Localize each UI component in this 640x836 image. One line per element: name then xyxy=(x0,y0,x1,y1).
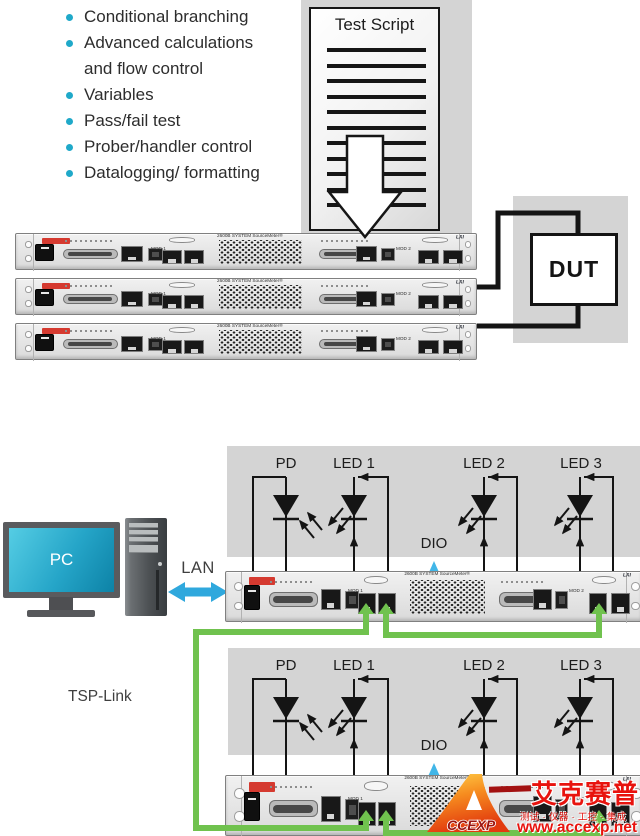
rack-hole xyxy=(631,602,640,611)
feature-list: Conditional branchingAdvanced calculatio… xyxy=(62,4,280,186)
tsp-link-label: TSP-Link xyxy=(68,688,132,706)
panel-marks xyxy=(321,285,370,287)
dut-label: DUT xyxy=(549,256,599,283)
diagram-canvas: Conditional branchingAdvanced calculatio… xyxy=(0,0,640,836)
mod1-label: MOD 1 xyxy=(348,589,356,606)
instrument: MOD 1MOD 22600B SYSTEM SourceMeter®LXI xyxy=(15,233,477,270)
drive-bay xyxy=(129,530,158,535)
rack-hole xyxy=(234,602,243,611)
monitor-stand-neck xyxy=(49,597,73,611)
tsp-link-port xyxy=(358,802,376,826)
power-switch xyxy=(244,792,261,821)
rack-hole xyxy=(25,331,31,337)
test-script-line xyxy=(327,203,426,207)
rack-seam xyxy=(33,324,34,361)
test-script-line xyxy=(327,79,426,83)
lxi-logo: LXI xyxy=(456,325,474,334)
usb-a-port xyxy=(592,576,616,584)
dio-label: DIO xyxy=(404,535,464,552)
power-mark xyxy=(41,292,49,294)
lxi-logo: LXI xyxy=(456,280,474,289)
tsp-link-port xyxy=(589,593,607,613)
rack-hole xyxy=(25,241,31,247)
rack-hole xyxy=(25,255,31,261)
power-switch xyxy=(244,585,261,610)
test-script-line xyxy=(327,64,426,68)
led1-label: LED 1 xyxy=(324,455,384,472)
watermark-brand-cn: 艾克赛普 xyxy=(531,774,639,811)
test-script-line xyxy=(327,157,426,161)
dsub-connector xyxy=(63,339,118,349)
usb-a-port xyxy=(422,282,449,288)
tsp-link-port xyxy=(418,340,438,355)
tsp-link-port xyxy=(443,340,463,355)
vent-grid xyxy=(219,330,302,354)
mod1-label: MOD 1 xyxy=(151,292,160,305)
power-switch xyxy=(35,244,54,262)
usb-a-port xyxy=(422,237,449,243)
vent-grid xyxy=(219,240,302,264)
instrument: MOD 1MOD 22600B SYSTEM SourceMeter®LXI xyxy=(15,323,477,360)
tsp-link-port xyxy=(184,295,204,310)
panel-marks xyxy=(65,285,114,287)
tsp-link-port xyxy=(162,295,182,310)
led3-label: LED 3 xyxy=(551,455,611,472)
tsp-link-port xyxy=(443,295,463,310)
tsp-link-port xyxy=(418,295,438,310)
mod1-label: MOD 1 xyxy=(151,337,160,350)
power-switch xyxy=(35,289,54,307)
rack-hole xyxy=(465,345,471,351)
lan-port xyxy=(356,246,378,262)
tsp-link-port xyxy=(162,250,182,265)
rack-hole xyxy=(234,582,243,591)
usb-a-port xyxy=(169,237,196,243)
usb-a-port xyxy=(364,781,388,791)
pc-label: PC xyxy=(50,550,74,570)
watermark-url: www.accexp.net xyxy=(517,819,637,836)
led2-label: LED 2 xyxy=(454,657,514,674)
tsp-link-port xyxy=(184,340,204,355)
dsub-connector xyxy=(63,249,118,259)
feature-item: Advanced calculations and flow control xyxy=(62,30,280,82)
led1-label: LED 1 xyxy=(324,657,384,674)
tsp-link-port xyxy=(184,250,204,265)
brand-label: 2600B SYSTEM SourceMeter® xyxy=(212,324,288,328)
usb-b-port xyxy=(381,248,395,261)
usb-b-port xyxy=(381,338,395,351)
panel-marks xyxy=(65,330,114,332)
svg-text:CCEXP: CCEXP xyxy=(447,817,496,833)
led2-label: LED 2 xyxy=(454,455,514,472)
panel-marks xyxy=(270,786,314,788)
dsub-connector xyxy=(269,800,318,817)
lan-port xyxy=(121,291,143,307)
panel-marks xyxy=(501,581,545,583)
instrument: MOD 1MOD 22600B SYSTEM SourceMeter®LXI xyxy=(15,278,477,315)
power-mark xyxy=(248,590,255,592)
pd-label: PD xyxy=(266,455,306,472)
lan-port xyxy=(121,336,143,352)
brand-label: 2600B SYSTEM SourceMeter® xyxy=(212,279,288,283)
drive-bay xyxy=(129,537,158,542)
pc-screen: PC xyxy=(9,528,114,592)
rack-hole xyxy=(25,345,31,351)
lan-label: LAN xyxy=(174,559,222,578)
lan-port xyxy=(356,336,378,352)
rack-seam xyxy=(241,572,242,623)
brand-label: 2600B SYSTEM SourceMeter® xyxy=(212,234,288,238)
lxi-logo: LXI xyxy=(456,235,474,244)
tsp-link-port xyxy=(162,340,182,355)
power-button-icon xyxy=(158,562,162,566)
feature-item: Variables xyxy=(62,82,280,108)
usb-a-port xyxy=(169,327,196,333)
tsp-link-port xyxy=(418,250,438,265)
test-script-line xyxy=(327,110,426,114)
feature-item: Pass/fail test xyxy=(62,108,280,134)
test-script-box: Test Script xyxy=(309,7,440,231)
tsp-link-port xyxy=(611,593,629,613)
rack-hole xyxy=(25,286,31,292)
power-switch xyxy=(35,334,54,352)
panel-marks xyxy=(270,581,314,583)
pc-monitor: PC xyxy=(3,522,120,598)
lan-arrow-icon xyxy=(168,582,228,602)
rack-seam xyxy=(33,234,34,271)
usb-a-port xyxy=(422,327,449,333)
test-script-line xyxy=(327,188,426,192)
vent-grid xyxy=(219,285,302,309)
tower-slot xyxy=(156,570,159,610)
dio-label: DIO xyxy=(404,737,464,754)
rack-hole xyxy=(465,300,471,306)
rack-seam xyxy=(241,776,242,836)
mod1-label: MOD 1 xyxy=(348,797,356,818)
led3-label: LED 3 xyxy=(551,657,611,674)
test-script-line xyxy=(327,48,426,52)
mod2-label: MOD 2 xyxy=(396,292,405,305)
dut-box: DUT xyxy=(530,233,618,306)
lxi-logo: LXI xyxy=(623,573,639,586)
mod2-label: MOD 2 xyxy=(569,589,577,606)
drive-bay xyxy=(129,545,158,553)
panel-marks xyxy=(321,240,370,242)
power-mark xyxy=(41,337,49,339)
pc-tower xyxy=(125,518,167,616)
test-script-title: Test Script xyxy=(311,15,438,35)
watermark: CCEXP 艾克赛普 测试 · 仪器 · 工控 · 集成 www.accexp.… xyxy=(425,772,640,836)
rack-hole xyxy=(465,255,471,261)
vent-grid xyxy=(410,580,485,614)
usb-a-port xyxy=(169,282,196,288)
feature-item: Conditional branching xyxy=(62,4,280,30)
rack-hole xyxy=(25,300,31,306)
dsub-connector xyxy=(63,294,118,304)
test-script-line xyxy=(327,126,426,130)
lan-port xyxy=(533,589,553,610)
tsp-link-port xyxy=(358,593,376,613)
panel-marks xyxy=(65,240,114,242)
brand-label: 2600B SYSTEM SourceMeter® xyxy=(403,572,471,578)
pd-label: PD xyxy=(266,657,306,674)
test-script-line xyxy=(327,172,426,176)
drive-bay xyxy=(129,523,158,528)
usb-b-port xyxy=(555,591,568,608)
test-script-line xyxy=(327,141,426,145)
power-mark xyxy=(41,247,49,249)
tsp-link-port xyxy=(443,250,463,265)
tsp-link-port xyxy=(378,593,396,613)
usb-a-port xyxy=(364,576,388,584)
feature-item: Prober/handler control xyxy=(62,134,280,160)
feature-item: Datalogging/ formatting xyxy=(62,160,280,186)
lan-port xyxy=(321,796,341,822)
tsp-link-port xyxy=(378,802,396,826)
monitor-stand-base xyxy=(27,610,95,617)
mod2-label: MOD 2 xyxy=(396,337,405,350)
power-mark xyxy=(248,798,255,800)
lan-port xyxy=(121,246,143,262)
test-script-line xyxy=(327,95,426,99)
panel-marks xyxy=(321,330,370,332)
lan-port xyxy=(321,589,341,610)
dsub-connector xyxy=(269,592,318,606)
mod2-label: MOD 2 xyxy=(396,247,405,260)
instrument: MOD 1MOD 22600B SYSTEM SourceMeter®LXI xyxy=(225,571,640,622)
usb-b-port xyxy=(381,293,395,306)
mod1-label: MOD 1 xyxy=(151,247,160,260)
rack-seam xyxy=(33,279,34,316)
lan-port xyxy=(356,291,378,307)
